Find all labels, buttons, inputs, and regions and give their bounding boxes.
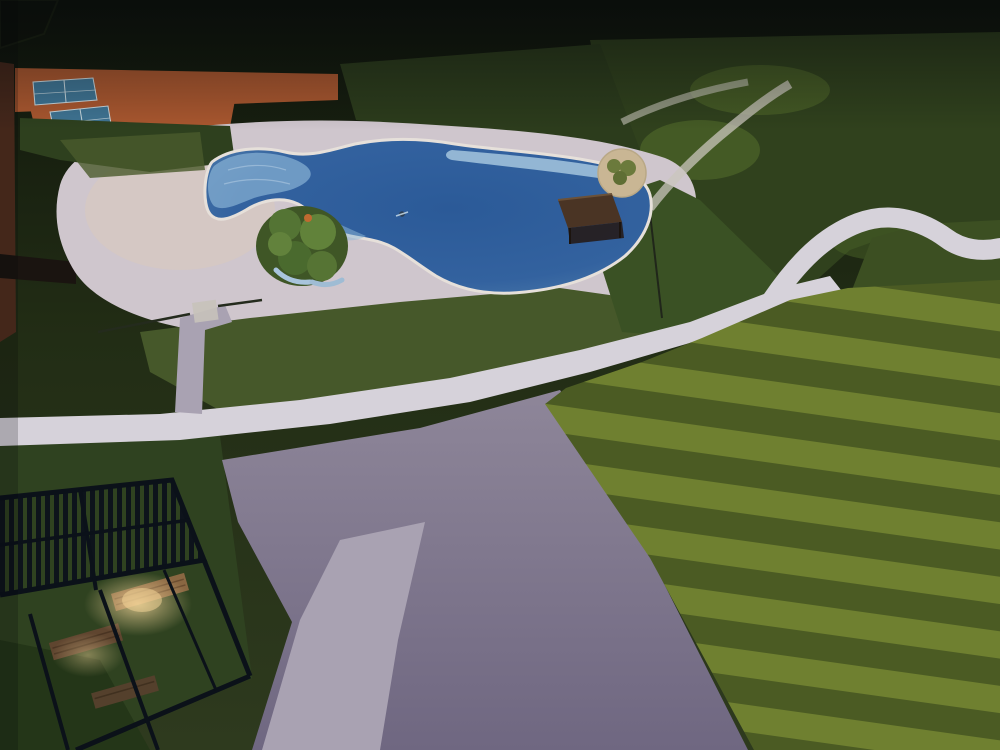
island-flower: [304, 214, 312, 222]
island-foliage: [307, 251, 337, 281]
park-rendering-canvas: [0, 0, 1000, 750]
aerial-park-rendering: [0, 0, 1000, 750]
edge-shade: [0, 0, 18, 750]
pool-lounge-island: [256, 206, 348, 286]
pool-gate: [192, 300, 219, 323]
dusk-vignette: [0, 0, 1000, 130]
warm-light-core: [122, 588, 162, 612]
warm-light-glow: [52, 633, 124, 677]
island-grass: [613, 171, 627, 185]
island-grass: [607, 159, 621, 173]
island-foliage: [268, 232, 292, 256]
